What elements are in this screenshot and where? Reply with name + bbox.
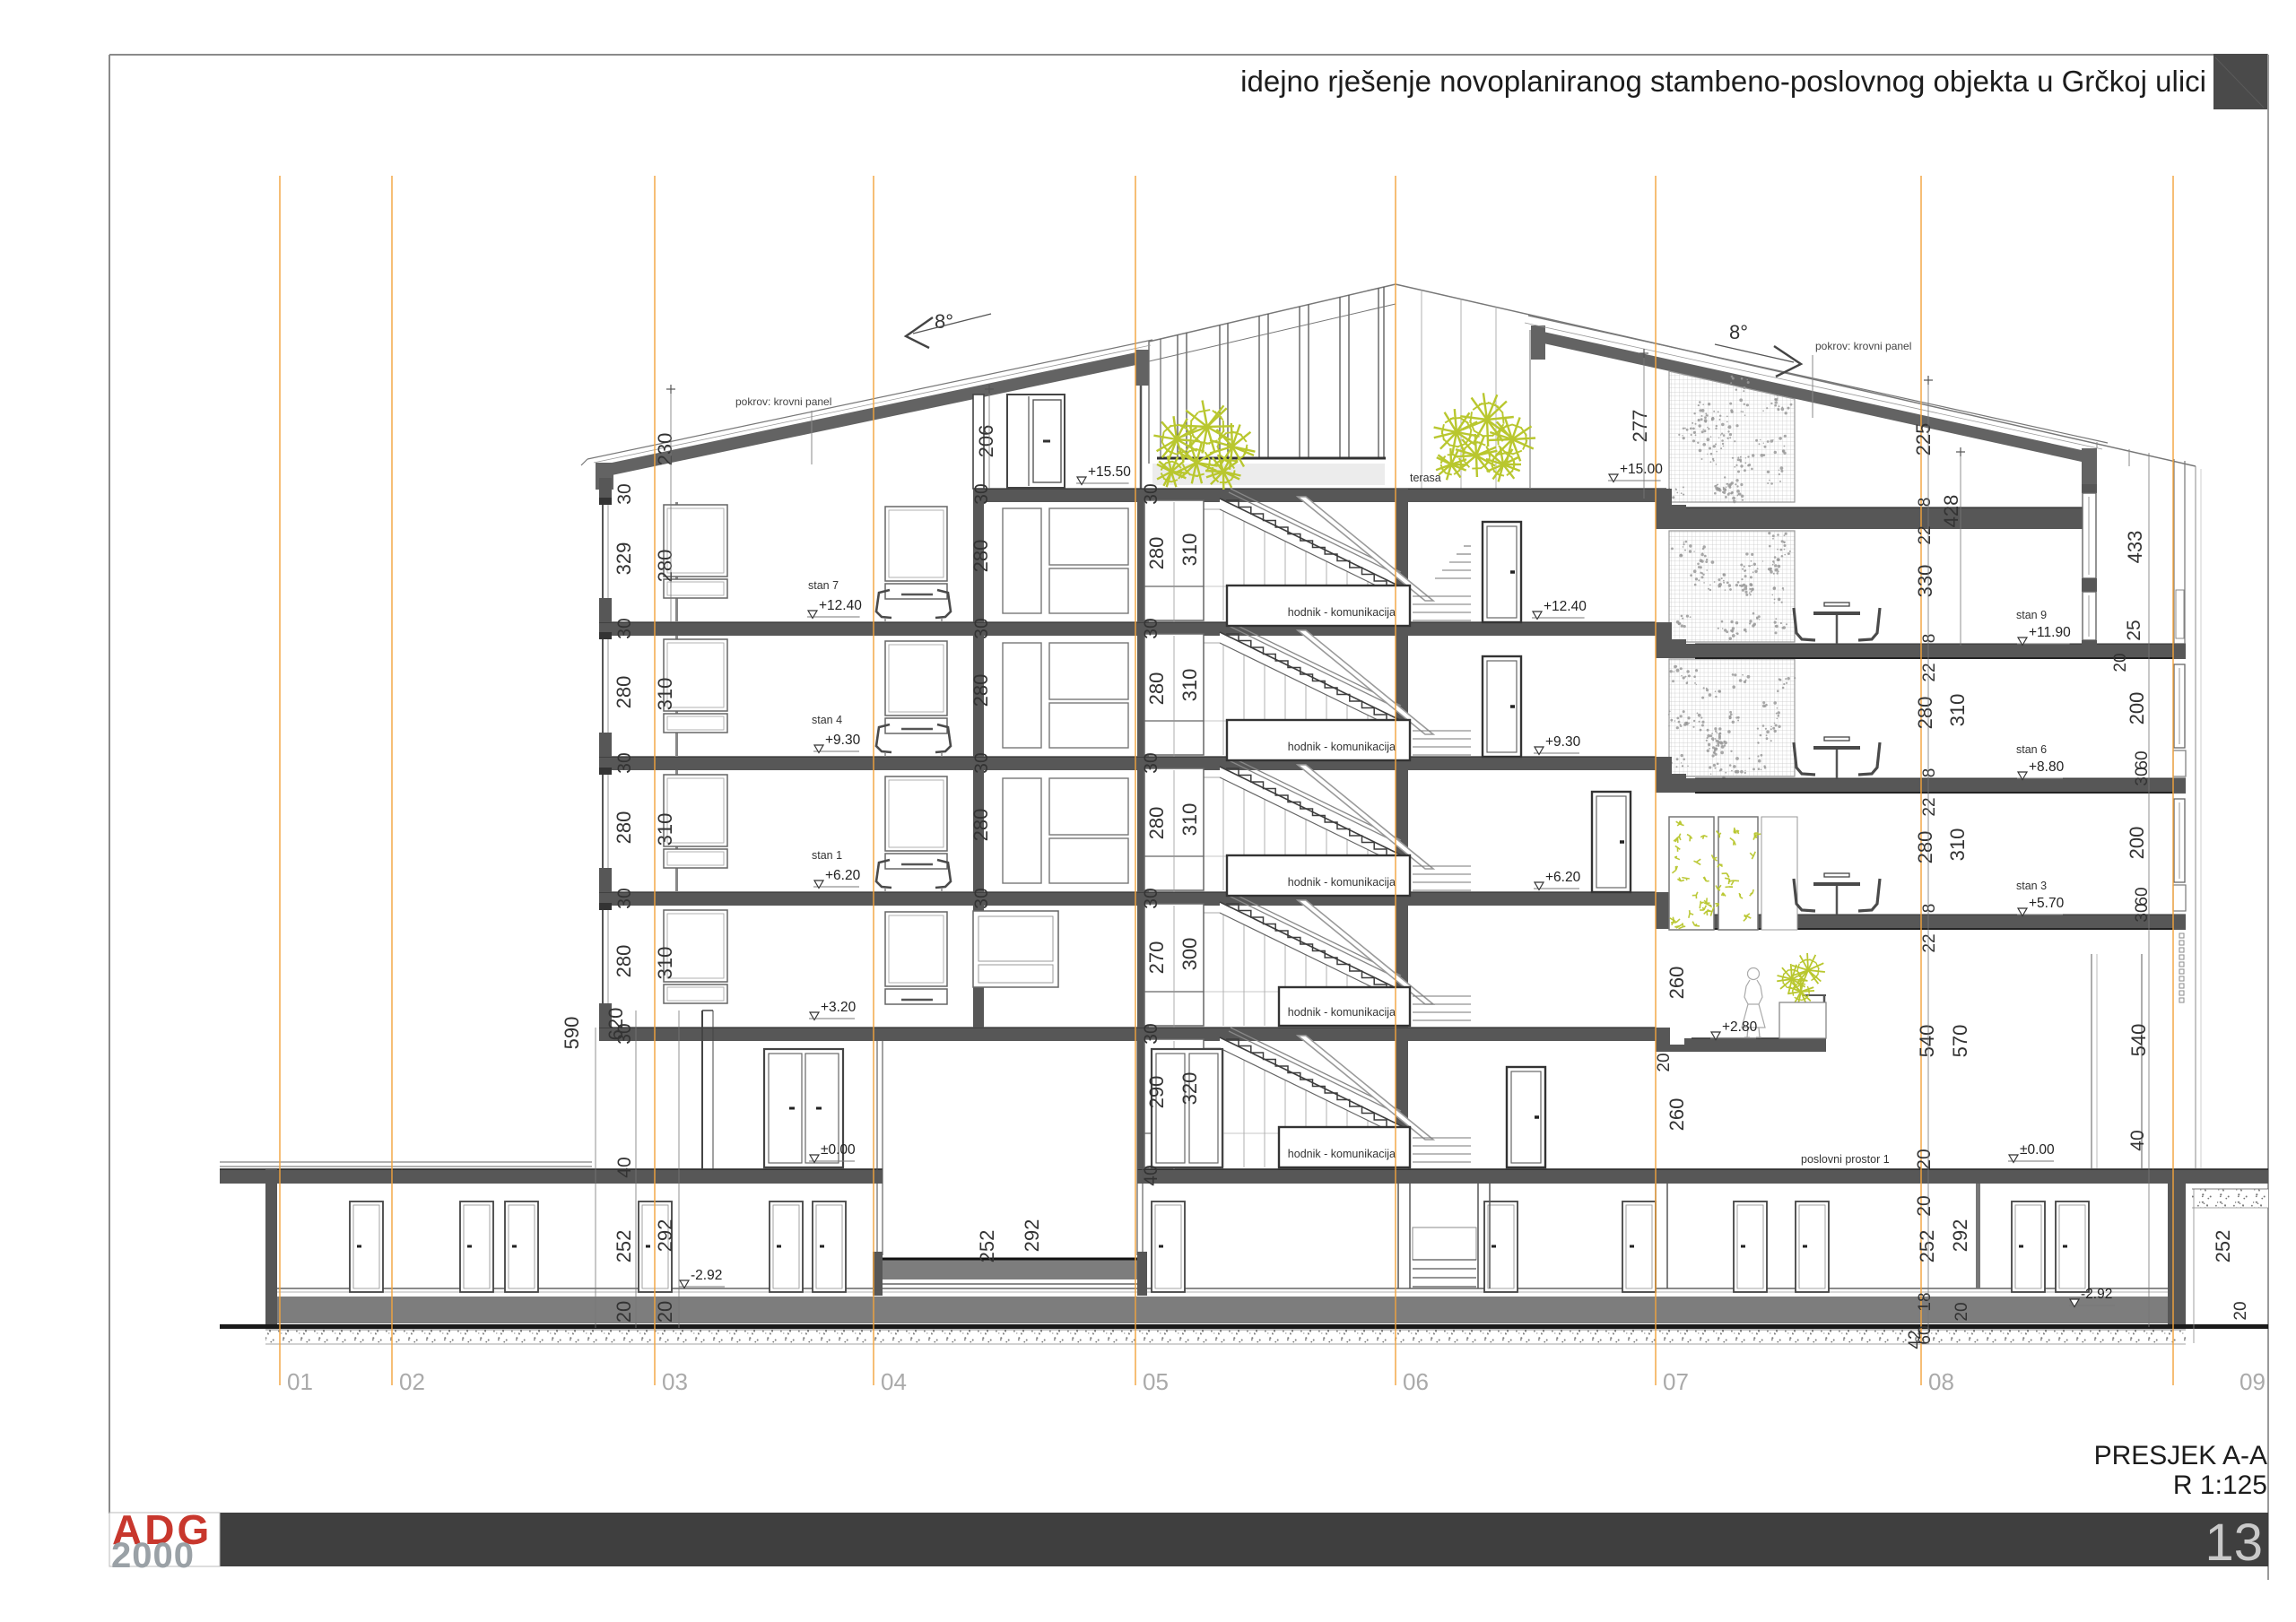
svg-text:30: 30: [614, 752, 635, 773]
svg-text:590: 590: [561, 1017, 583, 1050]
svg-text:310: 310: [654, 947, 676, 980]
svg-text:252: 252: [1916, 1230, 1938, 1263]
svg-text:280: 280: [613, 945, 635, 978]
svg-text:20: 20: [1655, 1053, 1674, 1071]
svg-text:+15.00: +15.00: [1620, 462, 1663, 477]
svg-text:280: 280: [1145, 672, 1168, 706]
svg-text:06: 06: [1403, 1368, 1429, 1395]
svg-text:310: 310: [1946, 694, 1969, 727]
svg-text:280: 280: [1145, 807, 1168, 840]
svg-text:pokrov: krovni panel: pokrov: krovni panel: [735, 395, 831, 408]
svg-text:pokrov: krovni panel: pokrov: krovni panel: [1815, 340, 1911, 352]
svg-text:05: 05: [1143, 1368, 1169, 1395]
svg-text:01: 01: [287, 1368, 313, 1395]
svg-text:225: 225: [1912, 423, 1935, 456]
svg-text:30: 30: [971, 752, 992, 773]
svg-text:stan 1: stan 1: [812, 849, 842, 862]
svg-text:2000: 2000: [111, 1536, 195, 1575]
svg-text:277: 277: [1629, 410, 1651, 443]
svg-text:stan 3: stan 3: [2016, 880, 2047, 892]
svg-text:8°: 8°: [1729, 321, 1748, 343]
svg-text:230: 230: [654, 433, 676, 466]
svg-text:260: 260: [1665, 1098, 1688, 1132]
svg-text:30: 30: [971, 483, 992, 504]
svg-text:+6.20: +6.20: [825, 868, 861, 883]
svg-text:18: 18: [1916, 1292, 1935, 1311]
svg-text:540: 540: [1916, 1025, 1938, 1058]
svg-text:330: 330: [1914, 565, 1936, 598]
svg-text:09: 09: [2239, 1368, 2266, 1395]
svg-text:292: 292: [1021, 1219, 1043, 1253]
svg-text:260: 260: [1665, 967, 1688, 1000]
svg-text:8: 8: [1916, 498, 1935, 507]
svg-text:270: 270: [1145, 941, 1168, 975]
svg-text:+15.50: +15.50: [1088, 464, 1131, 480]
svg-text:terasa: terasa: [1410, 472, 1441, 484]
svg-text:30: 30: [971, 888, 992, 908]
svg-text:+9.30: +9.30: [825, 733, 861, 748]
svg-text:310: 310: [1178, 533, 1201, 567]
svg-text:hodnik - komunikacija: hodnik - komunikacija: [1288, 606, 1396, 619]
svg-text:8: 8: [1920, 904, 1939, 914]
svg-text:30: 30: [614, 483, 635, 504]
svg-text:292: 292: [1949, 1219, 1971, 1253]
svg-text:+2.80: +2.80: [1722, 1019, 1758, 1035]
svg-text:hodnik - komunikacija: hodnik - komunikacija: [1288, 741, 1396, 753]
svg-text:-2.92: -2.92: [691, 1268, 722, 1283]
svg-text:+11.90: +11.90: [2029, 625, 2071, 640]
svg-text:30: 30: [1141, 483, 1161, 504]
svg-text:07: 07: [1663, 1368, 1689, 1395]
svg-text:40: 40: [1141, 1165, 1161, 1185]
svg-text:280: 280: [613, 811, 635, 845]
svg-text:30: 30: [614, 618, 635, 638]
svg-text:292: 292: [654, 1219, 676, 1253]
svg-text:280: 280: [1914, 831, 1936, 864]
svg-text:stan 6: stan 6: [2016, 743, 2047, 756]
svg-text:20: 20: [2231, 1301, 2250, 1320]
svg-text:30: 30: [1141, 888, 1161, 908]
svg-text:200: 200: [2126, 827, 2148, 860]
svg-text:+8.80: +8.80: [2029, 759, 2065, 775]
svg-text:30: 30: [1141, 1023, 1161, 1044]
svg-text:08: 08: [1928, 1368, 1954, 1395]
svg-text:310: 310: [1178, 669, 1201, 702]
svg-text:280: 280: [970, 540, 992, 573]
svg-text:30: 30: [614, 888, 635, 908]
svg-text:320: 320: [1178, 1072, 1201, 1106]
svg-text:8: 8: [1920, 634, 1939, 644]
svg-text:22: 22: [1916, 525, 1935, 544]
svg-text:+12.40: +12.40: [819, 598, 862, 613]
svg-text:idejno rješenje novoplaniranog: idejno rješenje novoplaniranog stambeno-…: [1240, 65, 2206, 98]
svg-text:329: 329: [613, 542, 635, 576]
svg-text:300: 300: [1178, 938, 1201, 971]
svg-text:8: 8: [1920, 768, 1939, 778]
svg-text:stan 4: stan 4: [812, 714, 842, 726]
svg-text:13: 13: [2205, 1514, 2263, 1572]
svg-text:20: 20: [613, 1301, 635, 1323]
svg-text:8°: 8°: [935, 310, 953, 333]
svg-text:280: 280: [654, 550, 676, 583]
svg-text:-2.92: -2.92: [2081, 1287, 2112, 1302]
svg-text:poslovni prostor 1: poslovni prostor 1: [1801, 1153, 1890, 1166]
svg-text:206: 206: [975, 425, 997, 458]
svg-text:280: 280: [1914, 697, 1936, 730]
svg-text:433: 433: [2124, 531, 2146, 564]
svg-text:252: 252: [613, 1230, 635, 1263]
svg-text:+12.40: +12.40: [1544, 599, 1587, 614]
svg-text:310: 310: [1946, 828, 1969, 862]
svg-text:30: 30: [1141, 752, 1161, 773]
svg-text:20: 20: [1952, 1302, 1971, 1321]
svg-text:252: 252: [976, 1230, 998, 1263]
svg-text:hodnik - komunikacija: hodnik - komunikacija: [1288, 876, 1396, 889]
svg-text:30: 30: [614, 1023, 635, 1044]
svg-text:hodnik - komunikacija: hodnik - komunikacija: [1288, 1006, 1396, 1019]
svg-text:R 1:125: R 1:125: [2173, 1470, 2267, 1500]
svg-text:20: 20: [1914, 1149, 1935, 1169]
svg-text:+5.70: +5.70: [2029, 896, 2065, 911]
svg-text:310: 310: [654, 813, 676, 846]
svg-text:hodnik - komunikacija: hodnik - komunikacija: [1288, 1148, 1396, 1160]
svg-text:570: 570: [1949, 1025, 1971, 1058]
svg-text:PRESJEK A-A: PRESJEK A-A: [2094, 1441, 2267, 1470]
svg-text:290: 290: [1145, 1076, 1168, 1109]
svg-text:540: 540: [2127, 1024, 2150, 1057]
svg-text:280: 280: [613, 676, 635, 709]
svg-text:428: 428: [1940, 495, 1962, 528]
svg-text:20: 20: [654, 1301, 676, 1323]
svg-text:stan 7: stan 7: [808, 579, 839, 592]
svg-text:22: 22: [1920, 797, 1939, 816]
svg-text:280: 280: [970, 809, 992, 842]
svg-text:20: 20: [2111, 653, 2130, 672]
svg-text:40: 40: [2127, 1130, 2148, 1150]
svg-text:±0.00: ±0.00: [2020, 1142, 2055, 1158]
svg-text:30: 30: [1141, 618, 1161, 638]
svg-text:40: 40: [614, 1157, 635, 1177]
svg-text:stan 9: stan 9: [2016, 609, 2047, 621]
svg-text:310: 310: [1178, 803, 1201, 837]
svg-text:30: 30: [971, 618, 992, 638]
svg-text:±0.00: ±0.00: [821, 1142, 856, 1158]
svg-text:+9.30: +9.30: [1545, 734, 1581, 750]
svg-text:22: 22: [1920, 933, 1939, 952]
svg-text:+3.20: +3.20: [821, 1000, 857, 1015]
svg-text:04: 04: [881, 1368, 907, 1395]
svg-text:280: 280: [1145, 537, 1168, 570]
svg-text:252: 252: [2212, 1230, 2234, 1263]
svg-text:310: 310: [654, 678, 676, 711]
svg-text:02: 02: [399, 1368, 425, 1395]
svg-text:03: 03: [662, 1368, 688, 1395]
svg-text:+6.20: +6.20: [1545, 870, 1581, 885]
svg-text:280: 280: [970, 674, 992, 707]
svg-text:25: 25: [2124, 620, 2144, 640]
svg-text:42: 42: [1906, 1330, 1925, 1349]
svg-text:20: 20: [1914, 1195, 1935, 1216]
svg-text:200: 200: [2126, 692, 2148, 725]
svg-text:22: 22: [1920, 663, 1939, 681]
